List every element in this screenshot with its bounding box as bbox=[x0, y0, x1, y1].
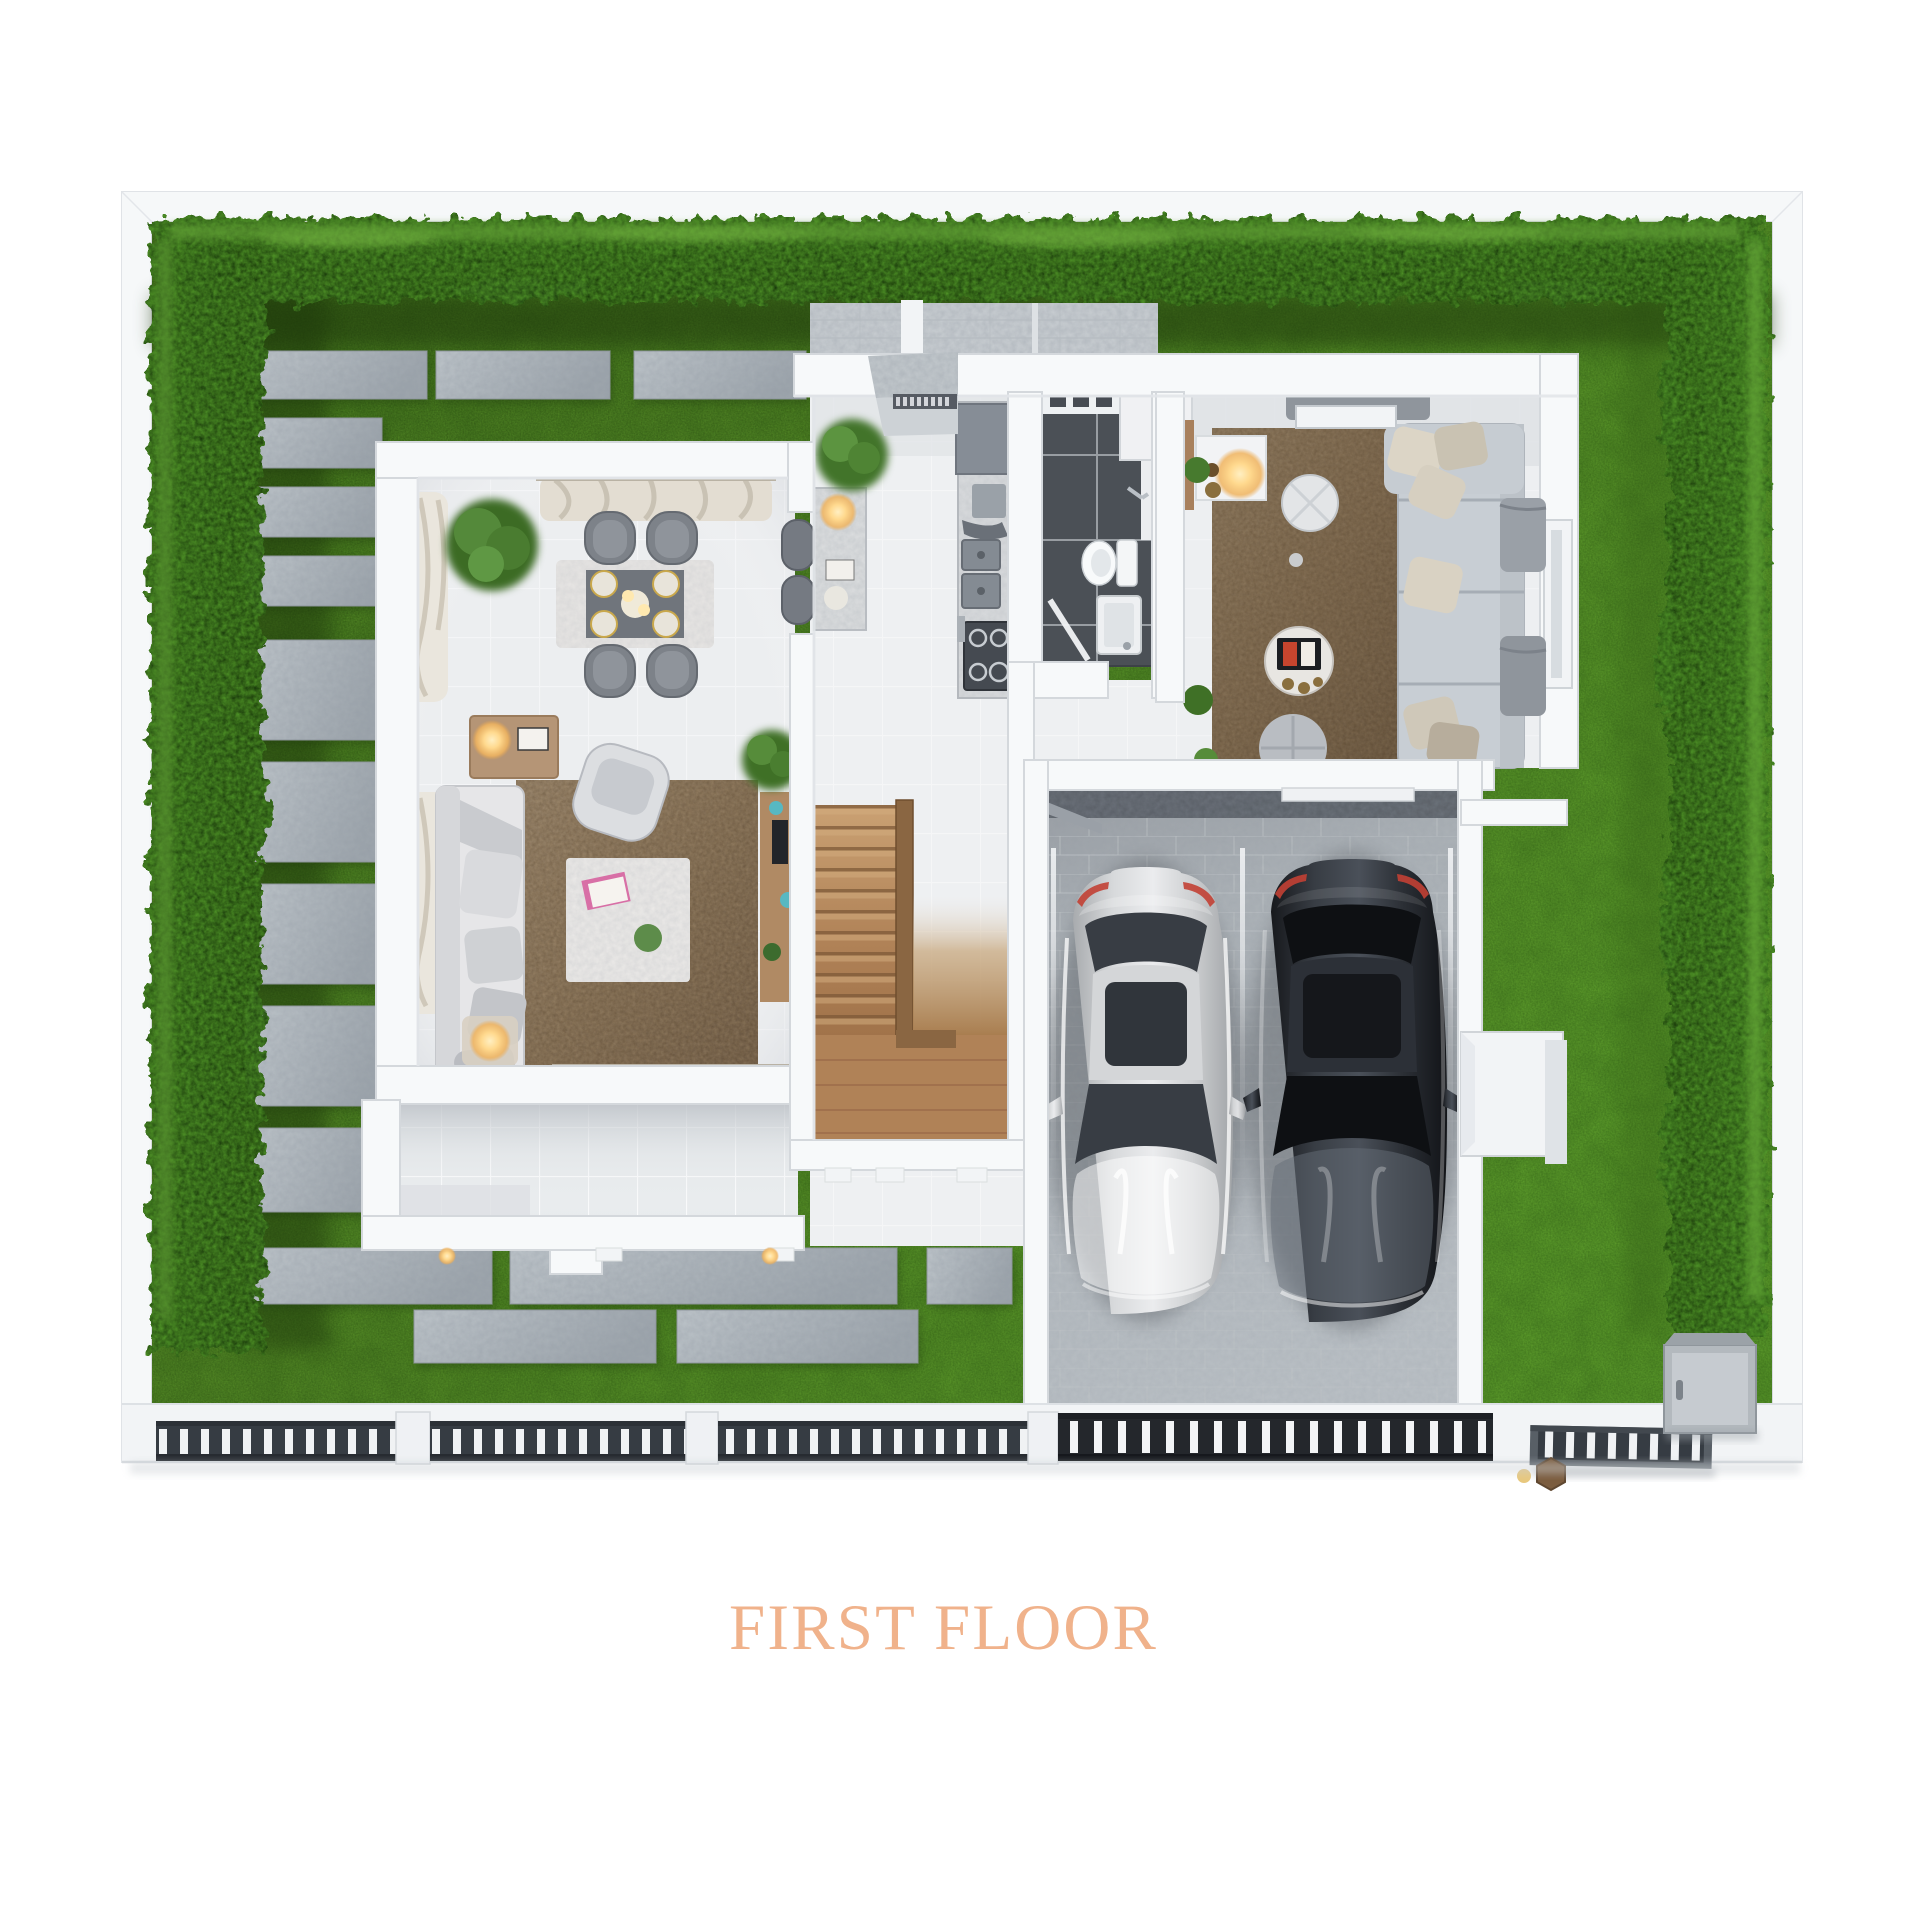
svg-text:FIRSTFLOOR: FIRSTFLOOR bbox=[729, 1592, 1158, 1664]
